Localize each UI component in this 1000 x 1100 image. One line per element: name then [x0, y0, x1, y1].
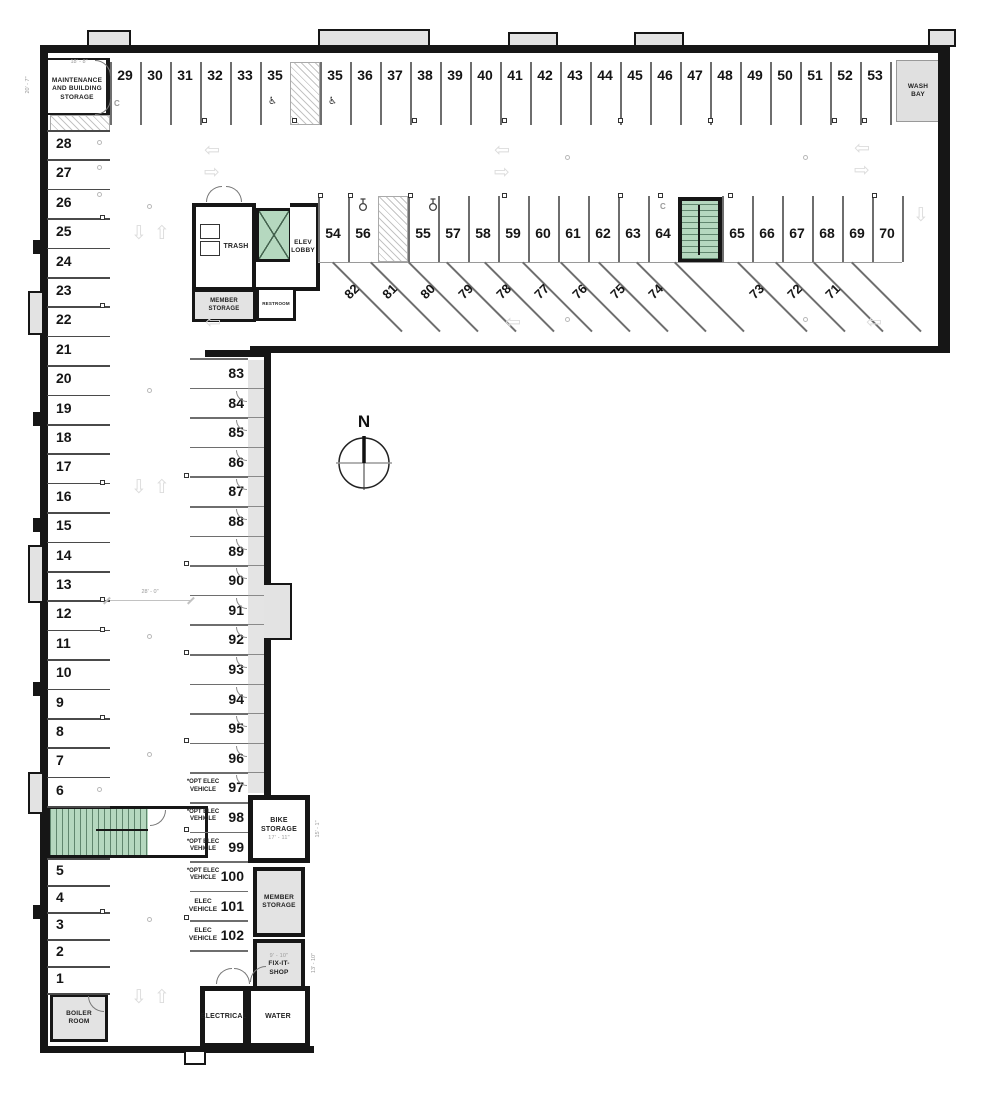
north-compass-icon: [332, 434, 396, 492]
parking-space-45-label: 45: [620, 68, 650, 82]
parking-space-63-label: 63: [618, 226, 648, 240]
stall-line: [890, 62, 892, 125]
dim-aisle-width: 28' - 0": [122, 589, 178, 595]
parking-space-7-label: 7: [56, 753, 84, 767]
arrow-right-icon: ⇨: [204, 163, 220, 182]
door-marker: [872, 193, 877, 198]
closet-divider: [248, 684, 264, 685]
wall: [33, 905, 41, 919]
stall-line: [47, 777, 110, 779]
stall-line: [190, 654, 248, 656]
parking-space-62-label: 62: [588, 226, 618, 240]
closet-divider: [248, 447, 264, 448]
stall-line: [190, 506, 248, 508]
ev-optional-label: *OPT ELEC VEHICLE: [183, 868, 223, 882]
closet-divider: [248, 476, 264, 477]
parking-space-66-label: 66: [752, 226, 782, 240]
parking-space-61-label: 61: [558, 226, 588, 240]
arrow-up-icon: ⇧: [154, 224, 170, 243]
wall-alcove: [928, 29, 956, 47]
door-marker: [184, 650, 189, 655]
parking-space-71-label: 71: [823, 282, 842, 301]
floor-drain-symbol: [97, 140, 102, 145]
parking-space-24-label: 24: [56, 254, 84, 268]
parking-space-56-label: 56: [348, 226, 378, 240]
parking-space-6-label: 6: [56, 783, 84, 797]
closet-divider: [248, 536, 264, 537]
room-restroom-label: RESTROOM: [262, 301, 290, 307]
parking-space-83-label: 83: [206, 366, 244, 380]
arrow-right-icon: ⇨: [494, 163, 510, 182]
stairwell-left-treads: [50, 809, 148, 855]
door-marker: [100, 627, 105, 632]
parking-space-35-label: 35: [320, 68, 350, 82]
parking-space-39-label: 39: [440, 68, 470, 82]
wall-alcove: [634, 32, 684, 47]
room-wash-bay-label: WASH BAY: [903, 83, 933, 100]
parking-space-30-label: 30: [140, 68, 170, 82]
hatched-access-aisle: [378, 196, 408, 262]
parking-space-78-label: 78: [494, 282, 513, 301]
room-electrical-label: ELECTRICAL: [201, 1012, 247, 1021]
stall-line: [636, 262, 706, 332]
door-marker: [100, 480, 105, 485]
floor-drain-symbol: [97, 192, 102, 197]
wall: [40, 1046, 314, 1053]
parking-space-15-label: 15: [56, 518, 84, 532]
stall-line: [47, 806, 110, 808]
floor-drain-symbol: [147, 388, 152, 393]
closet-divider: [248, 506, 264, 507]
door-marker: [184, 473, 189, 478]
room-member-storage-lower-label: MEMBER STORAGE: [258, 894, 300, 911]
parking-space-75-label: 75: [608, 282, 627, 301]
parking-space-42-label: 42: [530, 68, 560, 82]
parking-space-5-label: 5: [56, 863, 84, 877]
parking-space-81-label: 81: [380, 282, 399, 301]
door-marker: [100, 909, 105, 914]
stall-line: [190, 624, 248, 626]
door-swing-arc: [206, 186, 222, 202]
parking-garage-floor-plan: MAINTENANCE AND BUILDING STORAGE 18' - 8…: [0, 0, 1000, 1100]
door-marker: [618, 118, 623, 123]
parking-space-25-label: 25: [56, 224, 84, 238]
door-marker: [184, 561, 189, 566]
parking-space-41-label: 41: [500, 68, 530, 82]
door-marker: [618, 193, 623, 198]
door-marker: [502, 193, 507, 198]
closet-strip: [248, 360, 264, 793]
room-elev-lobby-label: ELEV LOBBY: [290, 239, 316, 256]
parking-space-14-label: 14: [56, 548, 84, 562]
stall-line: [47, 395, 110, 397]
wall-alcove: [28, 291, 44, 335]
stall-line: [47, 159, 110, 161]
door-marker: [202, 118, 207, 123]
closet-divider: [248, 417, 264, 418]
parking-space-2-label: 2: [56, 944, 84, 958]
stall-line: [190, 358, 248, 360]
ev-label: ELEC VEHICLE: [183, 898, 223, 914]
parking-space-18-label: 18: [56, 430, 84, 444]
room-water-label: WATER: [265, 1012, 291, 1021]
room-member-storage-upper: MEMBER STORAGE: [192, 289, 256, 322]
room-fixit-shop: 9' - 10" FIX-IT- SHOP: [253, 939, 305, 991]
floor-drain-symbol: [147, 917, 152, 922]
wall-alcove: [262, 583, 292, 640]
parking-space-65-label: 65: [722, 226, 752, 240]
wall-alcove: [87, 30, 131, 47]
wall: [938, 45, 950, 353]
parking-space-69-label: 69: [842, 226, 872, 240]
parking-space-17-label: 17: [56, 459, 84, 473]
stall-line: [190, 595, 248, 597]
arrow-left-icon: ⇦: [866, 313, 882, 332]
door-marker: [708, 118, 713, 123]
closet-divider: [248, 713, 264, 714]
stall-line: [190, 861, 248, 863]
parking-space-29-label: 29: [110, 68, 140, 82]
north-label: N: [352, 412, 376, 432]
floor-drain-symbol: [565, 155, 570, 160]
parking-space-4-label: 4: [56, 890, 84, 904]
closet-divider: [248, 743, 264, 744]
wall: [264, 357, 271, 795]
parking-space-72-label: 72: [785, 282, 804, 301]
arrow-down-icon: ⇩: [131, 988, 147, 1007]
room-trash-label: TRASH: [223, 242, 248, 251]
door-marker: [292, 118, 297, 123]
trash-equipment: [200, 241, 220, 256]
room-bike-storage: BIKE STORAGE 17' - 11": [248, 795, 310, 863]
stall-line: [190, 417, 248, 419]
stall-line: [47, 248, 110, 250]
parking-space-33-label: 33: [230, 68, 260, 82]
wall: [40, 45, 945, 53]
wheelchair-icon: ♿: [328, 96, 337, 107]
wall: [250, 346, 950, 353]
arrow-left-icon: ⇦: [205, 313, 221, 332]
stall-line: [190, 920, 248, 922]
parking-space-11-label: 11: [56, 636, 84, 650]
arrow-down-icon: ⇩: [131, 478, 147, 497]
wall: [33, 518, 41, 532]
stairwell-mid: [678, 197, 722, 263]
stall-line: [47, 747, 110, 749]
wall-alcove: [28, 545, 44, 603]
parking-space-73-label: 73: [747, 282, 766, 301]
parking-space-68-label: 68: [812, 226, 842, 240]
stall-line: [190, 713, 248, 715]
hatched-access-aisle: [290, 62, 320, 125]
door-marker: [100, 303, 105, 308]
stall-line: [190, 832, 248, 834]
arrow-up-icon: ⇧: [154, 478, 170, 497]
door-marker: [184, 738, 189, 743]
stall-line: [47, 365, 110, 367]
room-member-storage-lower: MEMBER STORAGE: [253, 867, 305, 937]
stall-line: [47, 689, 110, 691]
closet-divider: [248, 565, 264, 566]
stairwell-mid-divider: [698, 205, 700, 255]
parking-space-48-label: 48: [710, 68, 740, 82]
room-water: WATER: [246, 986, 310, 1048]
parking-space-53-label: 53: [860, 68, 890, 82]
room-electrical: ELECTRICAL: [200, 986, 248, 1048]
parking-space-8-label: 8: [56, 724, 84, 738]
parking-space-74-label: 74: [646, 282, 665, 301]
dim-bike-storage-width: 17' - 11": [268, 835, 290, 842]
ev-label: ELEC VEHICLE: [183, 927, 223, 943]
stall-line: [47, 336, 110, 338]
arrow-right-icon: ⇨: [854, 161, 870, 180]
room-fixit-shop-label: FIX-IT- SHOP: [261, 960, 297, 977]
room-elev-lobby: ELEV LOBBY: [290, 203, 320, 291]
dim-fixit-width: 9' - 10": [270, 953, 289, 960]
parking-space-82-label: 82: [342, 282, 361, 301]
stall-line: [190, 388, 248, 390]
stall-line: [190, 891, 248, 893]
door-marker: [100, 215, 105, 220]
parking-space-55-label: 55: [408, 226, 438, 240]
parking-space-27-label: 27: [56, 165, 84, 179]
parking-space-70-label: 70: [872, 226, 902, 240]
arrow-left-icon: ⇦: [854, 139, 870, 158]
arrow-left-icon: ⇦: [494, 141, 510, 160]
closet-divider: [248, 388, 264, 389]
parking-space-57-label: 57: [438, 226, 468, 240]
stall-line: [47, 659, 110, 661]
parking-space-23-label: 23: [56, 283, 84, 297]
parking-space-58-label: 58: [468, 226, 498, 240]
stall-line: [190, 950, 248, 952]
stairwell-left-divider: [96, 829, 148, 831]
parking-space-44-label: 44: [590, 68, 620, 82]
floor-drain-symbol: [565, 317, 570, 322]
arrow-up-icon: ⇧: [154, 988, 170, 1007]
stall-line: [47, 858, 110, 860]
floor-drain-symbol: [803, 317, 808, 322]
parking-space-12-label: 12: [56, 606, 84, 620]
parking-space-38-label: 38: [410, 68, 440, 82]
door-marker: [408, 193, 413, 198]
ev-optional-label: *OPT ELEC VEHICLE: [183, 809, 223, 823]
arrow-left-icon: ⇦: [204, 141, 220, 160]
wall-alcove: [318, 29, 430, 47]
wall-alcove: [28, 772, 44, 814]
parking-space-59-label: 59: [498, 226, 528, 240]
door-marker: [184, 827, 189, 832]
ev-optional-label: *OPT ELEC VEHICLE: [183, 839, 223, 853]
arrow-down-icon: ⇩: [913, 206, 929, 225]
parking-space-26-label: 26: [56, 195, 84, 209]
parking-space-19-label: 19: [56, 401, 84, 415]
parking-space-67-label: 67: [782, 226, 812, 240]
wall: [205, 350, 271, 357]
parking-space-54-label: 54: [318, 226, 348, 240]
parking-space-50-label: 50: [770, 68, 800, 82]
parking-space-9-label: 9: [56, 695, 84, 709]
dim-tick: [187, 597, 194, 604]
floor-drain-symbol: [803, 155, 808, 160]
stall-line: [47, 993, 110, 995]
stall-line: [47, 966, 110, 968]
parking-space-20-label: 20: [56, 371, 84, 385]
closet-divider: [248, 654, 264, 655]
door-swing-arc: [216, 968, 232, 984]
stall-line: [190, 743, 248, 745]
door-marker: [318, 193, 323, 198]
stall-line: [47, 189, 110, 191]
parking-space-36-label: 36: [350, 68, 380, 82]
door-marker: [184, 915, 189, 920]
floor-drain-symbol: [147, 634, 152, 639]
door-marker: [658, 193, 663, 198]
room-bike-storage-label: BIKE STORAGE: [254, 816, 304, 834]
parking-space-43-label: 43: [560, 68, 590, 82]
door-marker: [728, 193, 733, 198]
wheelchair-icon: ♿: [268, 96, 277, 107]
parking-space-46-label: 46: [650, 68, 680, 82]
dim-maintenance-height: 20' - 7": [25, 65, 31, 105]
floor-drain-symbol: [97, 787, 102, 792]
stall-line: [190, 447, 248, 449]
parking-space-40-label: 40: [470, 68, 500, 82]
parking-space-35-label: 35: [260, 68, 290, 82]
door-swing-arc: [226, 186, 242, 202]
room-wash-bay: WASH BAY: [896, 60, 940, 122]
dim-bike-storage-height: 15' - 1": [315, 807, 321, 851]
trash-equipment: [200, 224, 220, 239]
wall-alcove: [508, 32, 558, 47]
stall-line: [47, 885, 110, 887]
stall-line: [47, 512, 110, 514]
stall-line: [190, 684, 248, 686]
stall-line: [47, 542, 110, 544]
stall-line: [674, 262, 744, 332]
closet-divider: [248, 624, 264, 625]
stall-line: [47, 130, 110, 132]
parking-space-49-label: 49: [740, 68, 770, 82]
parking-space-3-label: 3: [56, 917, 84, 931]
door-marker: [348, 193, 353, 198]
closet-divider: [248, 772, 264, 773]
stall-line: [47, 277, 110, 279]
compact-marker: C: [114, 99, 120, 108]
parking-space-28-label: 28: [56, 136, 84, 150]
dim-aisle-line: [108, 600, 192, 601]
door-marker: [412, 118, 417, 123]
parking-space-47-label: 47: [680, 68, 710, 82]
parking-space-31-label: 31: [170, 68, 200, 82]
parking-space-51-label: 51: [800, 68, 830, 82]
parking-space-52-label: 52: [830, 68, 860, 82]
door-marker: [100, 715, 105, 720]
parking-space-37-label: 37: [380, 68, 410, 82]
parking-space-13-label: 13: [56, 577, 84, 591]
arrow-left-icon: ⇦: [505, 313, 521, 332]
stall-line: [47, 939, 110, 941]
parking-space-60-label: 60: [528, 226, 558, 240]
elevator-shaft: [256, 208, 292, 262]
parking-space-32-label: 32: [200, 68, 230, 82]
parking-space-22-label: 22: [56, 312, 84, 326]
ev-optional-label: *OPT ELEC VEHICLE: [183, 779, 223, 793]
parking-space-21-label: 21: [56, 342, 84, 356]
door-swing-arc: [234, 968, 250, 984]
parking-space-80-label: 80: [418, 282, 437, 301]
stall-line: [851, 262, 921, 332]
door-marker: [502, 118, 507, 123]
stall-line: [47, 453, 110, 455]
exit-vestibule: [184, 1050, 206, 1065]
stall-line: [190, 565, 248, 567]
dim-fixit-height: 13' - 10": [311, 941, 317, 985]
parking-space-79-label: 79: [456, 282, 475, 301]
stall-line: [47, 571, 110, 573]
floor-drain-symbol: [147, 204, 152, 209]
arrow-down-icon: ⇩: [131, 224, 147, 243]
compact-marker: C: [660, 202, 666, 211]
parking-space-76-label: 76: [570, 282, 589, 301]
parking-space-77-label: 77: [532, 282, 551, 301]
stall-line: [190, 802, 248, 804]
stall-line: [47, 424, 110, 426]
parking-space-64-label: 64: [648, 226, 678, 240]
parking-space-10-label: 10: [56, 665, 84, 679]
floor-drain-symbol: [97, 165, 102, 170]
wall: [33, 240, 41, 254]
parking-space-1-label: 1: [56, 971, 84, 985]
stall-line: [190, 476, 248, 478]
stall-line: [190, 772, 248, 774]
room-restroom: RESTROOM: [256, 287, 296, 321]
room-boiler-label: BOILER ROOM: [59, 1010, 99, 1027]
parking-space-16-label: 16: [56, 489, 84, 503]
motorcycle-icon: [357, 197, 369, 212]
stall-line: [902, 196, 904, 262]
floor-drain-symbol: [147, 752, 152, 757]
door-marker: [832, 118, 837, 123]
wall: [33, 682, 41, 696]
closet-divider: [248, 595, 264, 596]
stall-line: [190, 536, 248, 538]
wall: [33, 412, 41, 426]
door-marker: [862, 118, 867, 123]
